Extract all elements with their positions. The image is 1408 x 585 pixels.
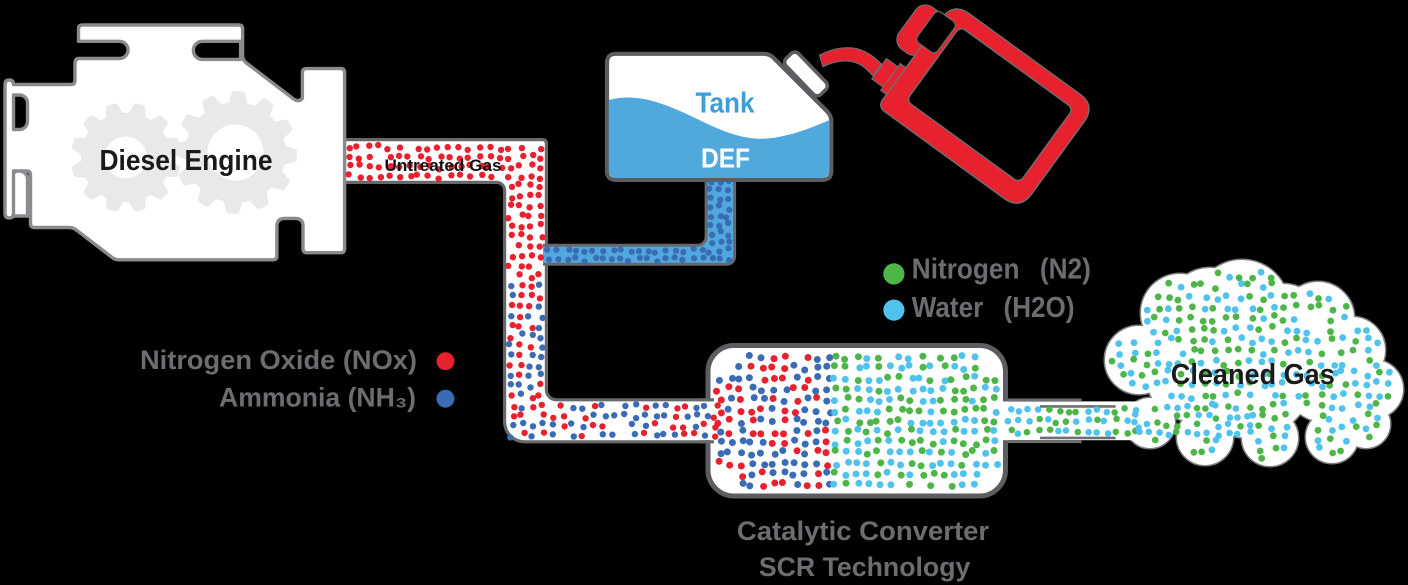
svg-text:Nitrogen Oxide (NOx): Nitrogen Oxide (NOx) xyxy=(140,345,417,375)
svg-text:DEF: DEF xyxy=(701,143,750,174)
svg-text:SCR Technology: SCR Technology xyxy=(759,552,971,582)
svg-text:Tank: Tank xyxy=(696,87,756,119)
svg-text:Water (H2O): Water (H2O) xyxy=(912,292,1075,324)
svg-text:Untreated Gas: Untreated Gas xyxy=(385,157,502,175)
svg-text:Ammonia (NH₃): Ammonia (NH₃) xyxy=(219,383,416,413)
svg-text:Diesel Engine: Diesel Engine xyxy=(100,145,273,177)
svg-text:Nitrogen (N2): Nitrogen (N2) xyxy=(912,254,1091,286)
svg-text:Catalytic Converter: Catalytic Converter xyxy=(737,516,990,546)
svg-text:Cleaned Gas: Cleaned Gas xyxy=(1171,359,1335,391)
